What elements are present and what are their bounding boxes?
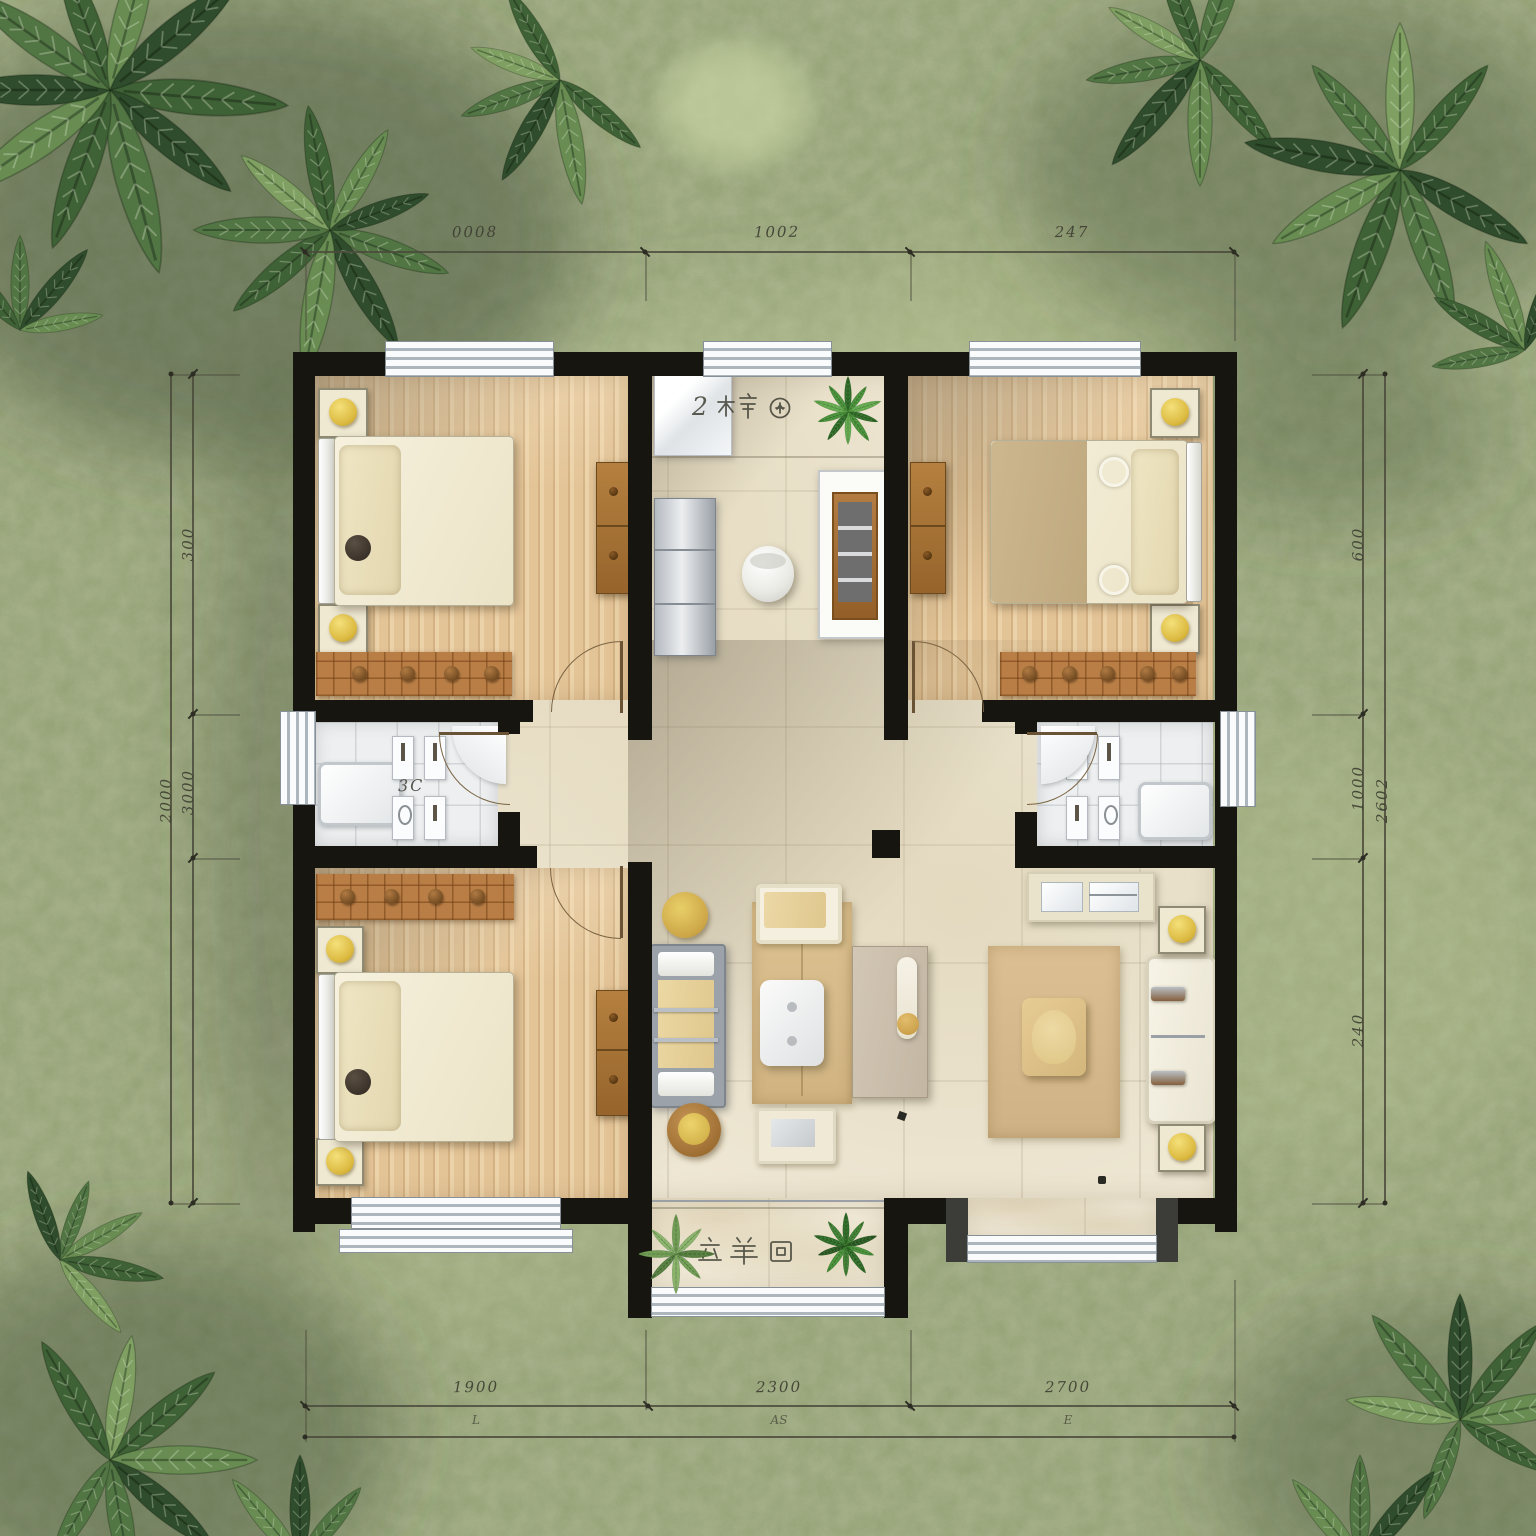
mat-knob (484, 666, 499, 681)
console-table (852, 946, 928, 1098)
sofa-seat-cushion (658, 980, 714, 1068)
dim-dot (1232, 1435, 1237, 1440)
table-lamp (1168, 1133, 1196, 1161)
dim-ext (1234, 251, 1236, 341)
dim-dot (1361, 372, 1366, 377)
dim-mark-3: E (1064, 1413, 1073, 1427)
sofa (650, 944, 726, 1108)
interior-wall (628, 862, 652, 1198)
tv-screen-line (1089, 894, 1137, 896)
dim-ext (192, 714, 240, 716)
dresser-divider (911, 525, 945, 527)
tiled-mat (1000, 652, 1196, 696)
cabinet-divider (655, 549, 715, 551)
sliding-door-track (652, 1200, 884, 1202)
toilet-bowl (1104, 805, 1118, 825)
dim-ext (170, 374, 240, 376)
dim-ext (1312, 1203, 1386, 1205)
sofa-handle (1151, 1071, 1185, 1085)
dresser (596, 462, 632, 594)
double-bed (334, 972, 514, 1142)
dim-label-right-3: 240 (1349, 1013, 1367, 1048)
interior-wall (315, 700, 533, 722)
dresser-knob (923, 487, 932, 496)
dresser-knob (923, 551, 932, 560)
bay-window-sill (968, 1236, 1156, 1262)
nightstand (318, 604, 368, 654)
dim-ext (645, 251, 647, 301)
window (386, 342, 553, 376)
dim-dot (1361, 1201, 1366, 1206)
ottoman-button (787, 1036, 797, 1046)
side-table-top (771, 1119, 815, 1147)
mat-knob (400, 666, 415, 681)
ottoman (760, 980, 824, 1066)
dim-mark-1: L (472, 1413, 480, 1427)
mat-knob (444, 666, 459, 681)
dresser-knob (609, 1075, 618, 1084)
sofa-arm-cushion (658, 952, 714, 976)
dim-dot (303, 1435, 308, 1440)
sofa-bar (654, 1008, 718, 1012)
interior-wall (498, 812, 520, 846)
bay-window-post (1156, 1198, 1178, 1262)
dresser-knob (609, 487, 618, 496)
window (970, 342, 1140, 376)
end-table (1158, 1124, 1206, 1172)
porch-wall (628, 1198, 652, 1318)
mat-knob (470, 889, 485, 904)
round-side-table (662, 892, 708, 938)
nightstand (316, 926, 364, 974)
mat-knob (352, 666, 367, 681)
kitchen-island (818, 470, 892, 639)
interior-wall (315, 846, 537, 868)
mat-knob (1100, 666, 1115, 681)
bidet (1066, 796, 1088, 840)
tiled-mat (316, 652, 512, 696)
round-cushion (345, 1069, 371, 1095)
dim-dot (191, 712, 196, 717)
bed-pillow (1131, 449, 1179, 595)
interior-wall (884, 376, 908, 740)
double-bed (334, 436, 514, 606)
dim-dot (169, 1201, 174, 1206)
mat-knob (1022, 666, 1037, 681)
bed-pillow (339, 981, 401, 1131)
dim-dot (191, 1201, 196, 1206)
window (704, 342, 831, 376)
tv-console (1027, 872, 1155, 922)
dim-dot (646, 1404, 651, 1409)
dim-ext (910, 1330, 912, 1410)
cabinet-divider (655, 603, 715, 605)
table-lamp (1161, 398, 1189, 426)
svg-text:2: 2 (691, 392, 708, 421)
dim-line-bottom-outer (305, 1436, 1234, 1438)
shelf (838, 578, 872, 582)
bed-decor-ring (1099, 565, 1129, 595)
dim-ext (645, 1330, 647, 1410)
round-basin (742, 546, 794, 602)
table-lamp (1161, 614, 1189, 642)
dim-label-left-1: 300 (179, 527, 197, 562)
dim-mark-2: AS (771, 1413, 788, 1427)
dresser-knob (609, 551, 618, 560)
sofa-white (1146, 956, 1216, 1124)
dim-ext (192, 858, 240, 860)
mat-knob (384, 889, 399, 904)
dim-ext (1312, 714, 1364, 716)
bed-blanket (991, 441, 1087, 603)
dim-ext (305, 1330, 307, 1442)
dresser (910, 462, 946, 594)
dim-label-top-3: 247 (1055, 223, 1090, 241)
bed-headboard (1186, 442, 1202, 602)
interior-wall (1015, 812, 1037, 846)
end-table (1158, 906, 1206, 954)
dim-dot (643, 250, 648, 255)
dresser (596, 990, 632, 1116)
dim-label-right-1: 600 (1349, 527, 1367, 562)
interior-wall (1015, 846, 1215, 868)
dim-dot (191, 372, 196, 377)
toilet-bowl (398, 805, 412, 825)
pale-grass-blob (655, 39, 815, 171)
dim-dot (908, 250, 913, 255)
dim-dot (1361, 712, 1366, 717)
column (872, 830, 900, 858)
dim-ext (170, 1203, 240, 1205)
dresser-divider (597, 1049, 631, 1051)
sofa-handle (1151, 987, 1185, 1001)
dim-dot (303, 250, 308, 255)
bathtub (318, 762, 402, 826)
dim-dot (1232, 250, 1237, 255)
bay-window-floor (968, 1198, 1156, 1238)
porch-wall (884, 1198, 908, 1318)
dim-label-bottom-3: 2700 (1045, 1378, 1091, 1396)
table-candle (678, 1113, 710, 1145)
tv-screen (1041, 882, 1083, 912)
shelf (838, 526, 872, 530)
dim-label-top-2: 1002 (754, 223, 800, 241)
vestibule-label: 2 梓 ⑥ 2 (688, 388, 798, 422)
interior-wall (628, 376, 652, 740)
kitchen-cabinet (654, 498, 716, 656)
dim-line-bottom-inner (305, 1405, 1234, 1407)
dim-dot (908, 1404, 913, 1409)
nightstand (318, 388, 368, 438)
dim-ext (305, 251, 307, 341)
nightstand (1150, 604, 1200, 654)
bidet (424, 796, 446, 840)
dim-dot (1232, 1404, 1237, 1409)
round-cushion (345, 535, 371, 561)
mat-knob (1140, 666, 1155, 681)
pouf-top (1032, 1010, 1076, 1064)
mat-knob (340, 889, 355, 904)
dim-dot (1361, 856, 1366, 861)
dim-ext (910, 251, 912, 301)
island-shelf-unit (832, 492, 878, 620)
dim-label-bottom-1: 1900 (453, 1378, 499, 1396)
site-plan-scene: 0008 1002 247 1900 2300 2700 L AS E (0, 0, 1536, 1536)
faucet (433, 805, 437, 821)
shelf (838, 552, 872, 556)
armchair (756, 884, 842, 944)
faucet (401, 743, 405, 761)
window-sill (340, 1230, 572, 1252)
dim-label-left-2: 3000 (179, 769, 197, 815)
dim-dot (169, 372, 174, 377)
dim-line-top (305, 251, 1234, 253)
dim-ext (1234, 1280, 1236, 1442)
sofa-arm-cushion (658, 1072, 714, 1096)
ottoman-button (787, 1002, 797, 1012)
basin-rim (750, 553, 786, 569)
faucet (1075, 805, 1079, 821)
dim-label-top-1: 0008 (452, 223, 498, 241)
toilet (1098, 796, 1120, 840)
nightstand (1150, 388, 1200, 438)
table-lamp (326, 935, 354, 963)
mat-knob (428, 889, 443, 904)
faucet (1107, 743, 1111, 761)
interior-wall (982, 700, 1215, 722)
vestibule-threshold (652, 456, 884, 458)
mat-knob (1062, 666, 1077, 681)
bed-pillow (339, 445, 401, 595)
double-bed (990, 440, 1188, 604)
dim-label-left-outer: 2000 (157, 777, 175, 823)
nightstand (316, 1138, 364, 1186)
table-lamp (1168, 915, 1196, 943)
dresser-divider (597, 525, 631, 527)
dim-dot (303, 1404, 308, 1409)
dim-label-right-2: 1000 (1349, 765, 1367, 811)
round-coffee-table (667, 1103, 721, 1157)
window (281, 712, 315, 804)
side-table (756, 1108, 836, 1164)
dim-ext (1312, 374, 1386, 376)
decor-bowl (897, 1013, 919, 1035)
table-lamp (329, 398, 357, 426)
sink (392, 736, 414, 780)
dim-dot (191, 856, 196, 861)
bathroom-label: 3C (398, 776, 425, 795)
sliding-door-track (652, 1207, 884, 1209)
porch-steps (652, 1288, 884, 1316)
sofa-bar (654, 1038, 718, 1042)
dim-label-right-outer: 2602 (1373, 777, 1391, 823)
bed-decor-ring (1099, 457, 1129, 487)
table-lamp (329, 614, 357, 642)
dim-ext (1312, 858, 1364, 860)
toilet (392, 796, 414, 840)
dim-dot (1383, 1201, 1388, 1206)
dim-label-bottom-2: 2300 (756, 1378, 802, 1396)
tiled-mat (316, 874, 514, 920)
porch-label: 立 羊 回 (695, 1232, 819, 1268)
sofa-split (1151, 1035, 1205, 1038)
dim-dot (1383, 372, 1388, 377)
faucet (433, 743, 437, 761)
armchair-cushion (764, 892, 826, 928)
dresser-knob (609, 1013, 618, 1022)
mat-knob (1172, 666, 1187, 681)
sink (1098, 736, 1120, 780)
window (1221, 712, 1255, 806)
bay-window-post (946, 1198, 968, 1262)
tv-screen (1089, 882, 1139, 912)
bathtub (1138, 782, 1212, 840)
floor-pouf (1022, 998, 1086, 1076)
table-lamp (326, 1147, 354, 1175)
window (352, 1198, 560, 1228)
floor-mark (1098, 1176, 1106, 1184)
